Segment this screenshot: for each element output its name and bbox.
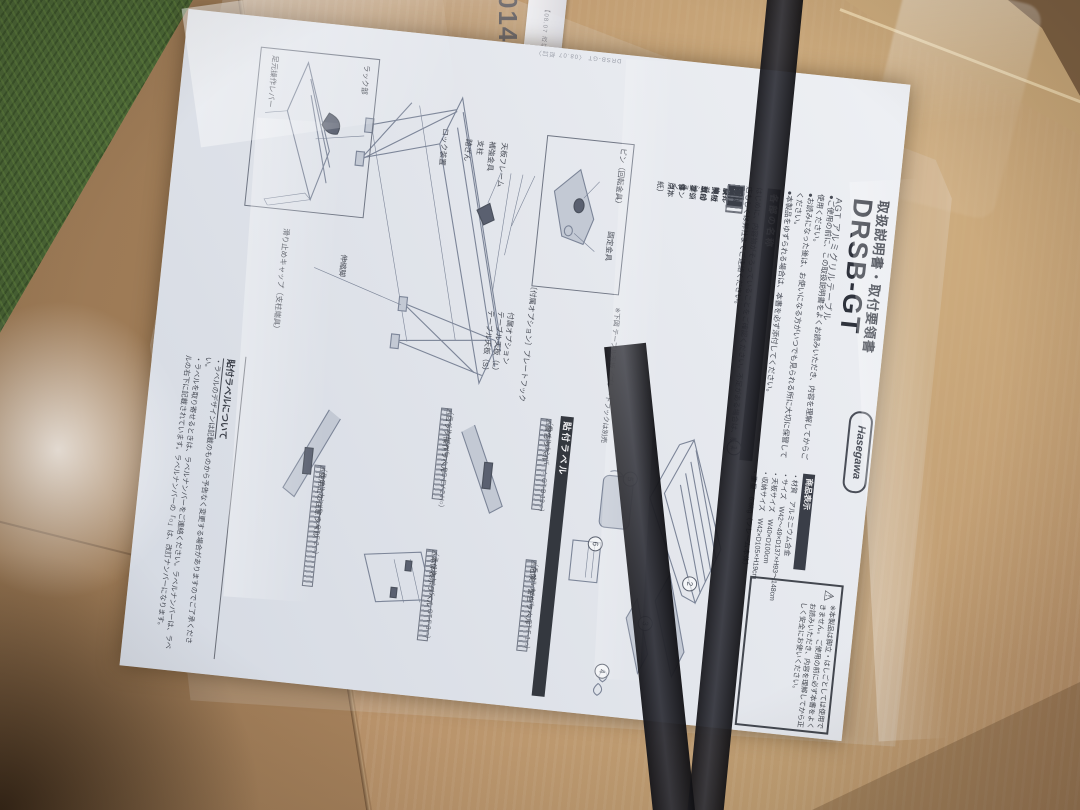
- label-location-sketch: [229, 384, 556, 690]
- frame-callout-label: 伸縮脚: [336, 254, 349, 278]
- warning-triangle-icon: ⚠: [819, 589, 838, 602]
- warning-box: ⚠※本製品は脚立・はしごとしては使用できません。ご使用の前に必ず本書をよくお読み…: [735, 576, 844, 735]
- warning-box-text: ※本製品は脚立・はしごとしては使用できません。ご使用の前に必ず本書をよくお読みい…: [784, 601, 836, 732]
- instruction-sheet: DRSB-GT 〈08.07 改訂〉 取扱説明書・取付要領書 DRSB-GT A…: [119, 9, 910, 741]
- frame-callout-label: 支柱: [474, 140, 487, 156]
- lock-detail-inset: ピン（回転金具） 固定金具: [531, 135, 634, 295]
- frame-callout-label: 踏ざん: [461, 138, 474, 162]
- photo-scene: 0140 【08.07 改訂】 DRSB-GT 〈08.07 改訂〉 取扱説明書…: [0, 0, 1080, 810]
- about-labels-bullets: ・ラベルのデザインは記載のものから予告なく変更する場合がありますのでご了承くださ…: [152, 354, 223, 657]
- rack-inset: ラック部 足元操作レバー: [244, 47, 380, 219]
